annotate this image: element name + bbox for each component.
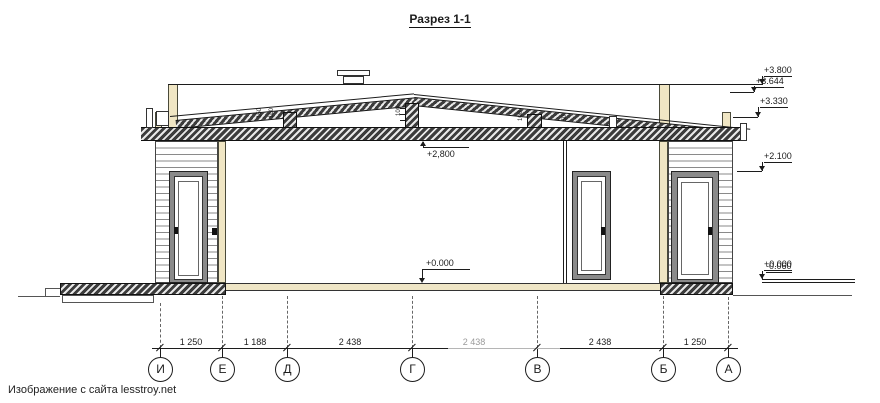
truss-post-center	[405, 103, 419, 128]
truss-post-right	[527, 114, 542, 128]
elevation-3644: +3.644	[756, 77, 784, 88]
dimension-value-faded: 2 438	[452, 338, 496, 347]
right-door-panel	[681, 182, 709, 275]
left-step-riser	[45, 288, 46, 296]
ground-line-left	[18, 296, 60, 297]
roofing-line-right	[414, 94, 750, 130]
elevation-zero-arrow	[759, 274, 765, 279]
dimension-line-faded-segment	[448, 348, 560, 349]
right-door-handle	[708, 227, 712, 235]
middle-door-panel	[581, 181, 602, 271]
left-door-panel	[178, 181, 199, 276]
axis-extension-i	[160, 303, 161, 348]
left-eaves-block	[156, 111, 169, 126]
elevation-3330-stub	[733, 117, 758, 118]
tick-mark	[400, 120, 405, 121]
ceiling-mark-line	[423, 147, 469, 148]
axis-circle-a: А	[716, 357, 741, 382]
axis-extension-e	[222, 296, 223, 348]
axis-stub	[663, 349, 664, 357]
axis-circle-g: Г	[400, 357, 425, 382]
truss-label-50: 50	[562, 110, 568, 126]
floor-mark-arrow	[419, 278, 425, 283]
axis-stub	[412, 349, 413, 357]
chimney-body	[343, 76, 364, 84]
axis-circle-e: Е	[210, 357, 235, 382]
axis-stub	[287, 349, 288, 357]
middle-door-handle	[601, 227, 605, 235]
left-foundation-outline	[62, 295, 154, 303]
left-eaves-fascia	[146, 108, 153, 128]
truss-label-100: 100	[269, 105, 275, 121]
parapet-top-line	[168, 84, 763, 85]
site-credit: Изображение с сайта lesstroy.net	[8, 384, 176, 396]
axis-stub	[222, 349, 223, 357]
section-drawing: Разрез 1-1 150 100 100 100 50	[0, 0, 880, 403]
axis-circle-v: В	[525, 357, 550, 382]
truss-post-left	[283, 112, 297, 128]
elevation-minus-060: -0.060	[766, 262, 792, 273]
right-eaves-fascia	[740, 123, 747, 141]
axis-extension-v	[537, 296, 538, 348]
elevation-2100-stub	[737, 171, 762, 172]
ground-line-right	[733, 295, 852, 296]
truss-label-100: 100	[396, 103, 402, 119]
floor-mark-line	[422, 269, 470, 270]
dimension-value: 2 438	[578, 338, 622, 347]
floor-mark-riser	[422, 269, 423, 278]
ceiling-elevation-label: +2,800	[427, 150, 455, 159]
axis-stub	[537, 349, 538, 357]
left-step-tread	[45, 288, 60, 289]
right-porch-slab	[660, 283, 733, 295]
post-axis-b	[659, 141, 668, 283]
elevation-3644-stub	[730, 92, 754, 93]
axis-circle-i: И	[148, 357, 173, 382]
drawing-title-text: Разрез 1-1	[409, 12, 470, 28]
dimension-value: 2 438	[328, 338, 372, 347]
left-door-handle	[174, 227, 178, 234]
dimension-value: 1 188	[233, 338, 277, 347]
elevation-2100: +2.100	[764, 152, 792, 163]
partition-edge-line	[566, 141, 567, 283]
dimension-value: 1 250	[169, 338, 213, 347]
axis-extension-d	[287, 296, 288, 348]
axis-extension-g	[412, 296, 413, 348]
interior-floor-slab	[226, 283, 660, 291]
right-level-line-lower	[762, 282, 855, 283]
truss-label-100: 100	[518, 108, 524, 124]
axis-stub	[728, 349, 729, 357]
right-top-post	[659, 84, 670, 128]
partition-edge-line	[563, 141, 564, 283]
axis-extension-b	[663, 296, 664, 348]
axis-circle-d: Д	[275, 357, 300, 382]
right-level-line-upper	[762, 279, 855, 280]
elevation-3330: +3.330	[760, 97, 788, 108]
floor-elevation-label: +0.000	[426, 259, 454, 268]
dimension-value: 1 250	[673, 338, 717, 347]
left-porch-slab	[60, 283, 226, 295]
drawing-title: Разрез 1-1	[0, 12, 880, 26]
ceiling-slab	[141, 127, 745, 141]
dimension-line	[152, 348, 738, 349]
axis-circle-b: Б	[651, 357, 676, 382]
axis-extension-a	[728, 297, 729, 348]
left-wall-handle-mark	[212, 228, 217, 235]
truss-label-150: 150	[257, 105, 263, 121]
axis-stub	[160, 349, 161, 357]
post-axis-e	[218, 141, 226, 283]
